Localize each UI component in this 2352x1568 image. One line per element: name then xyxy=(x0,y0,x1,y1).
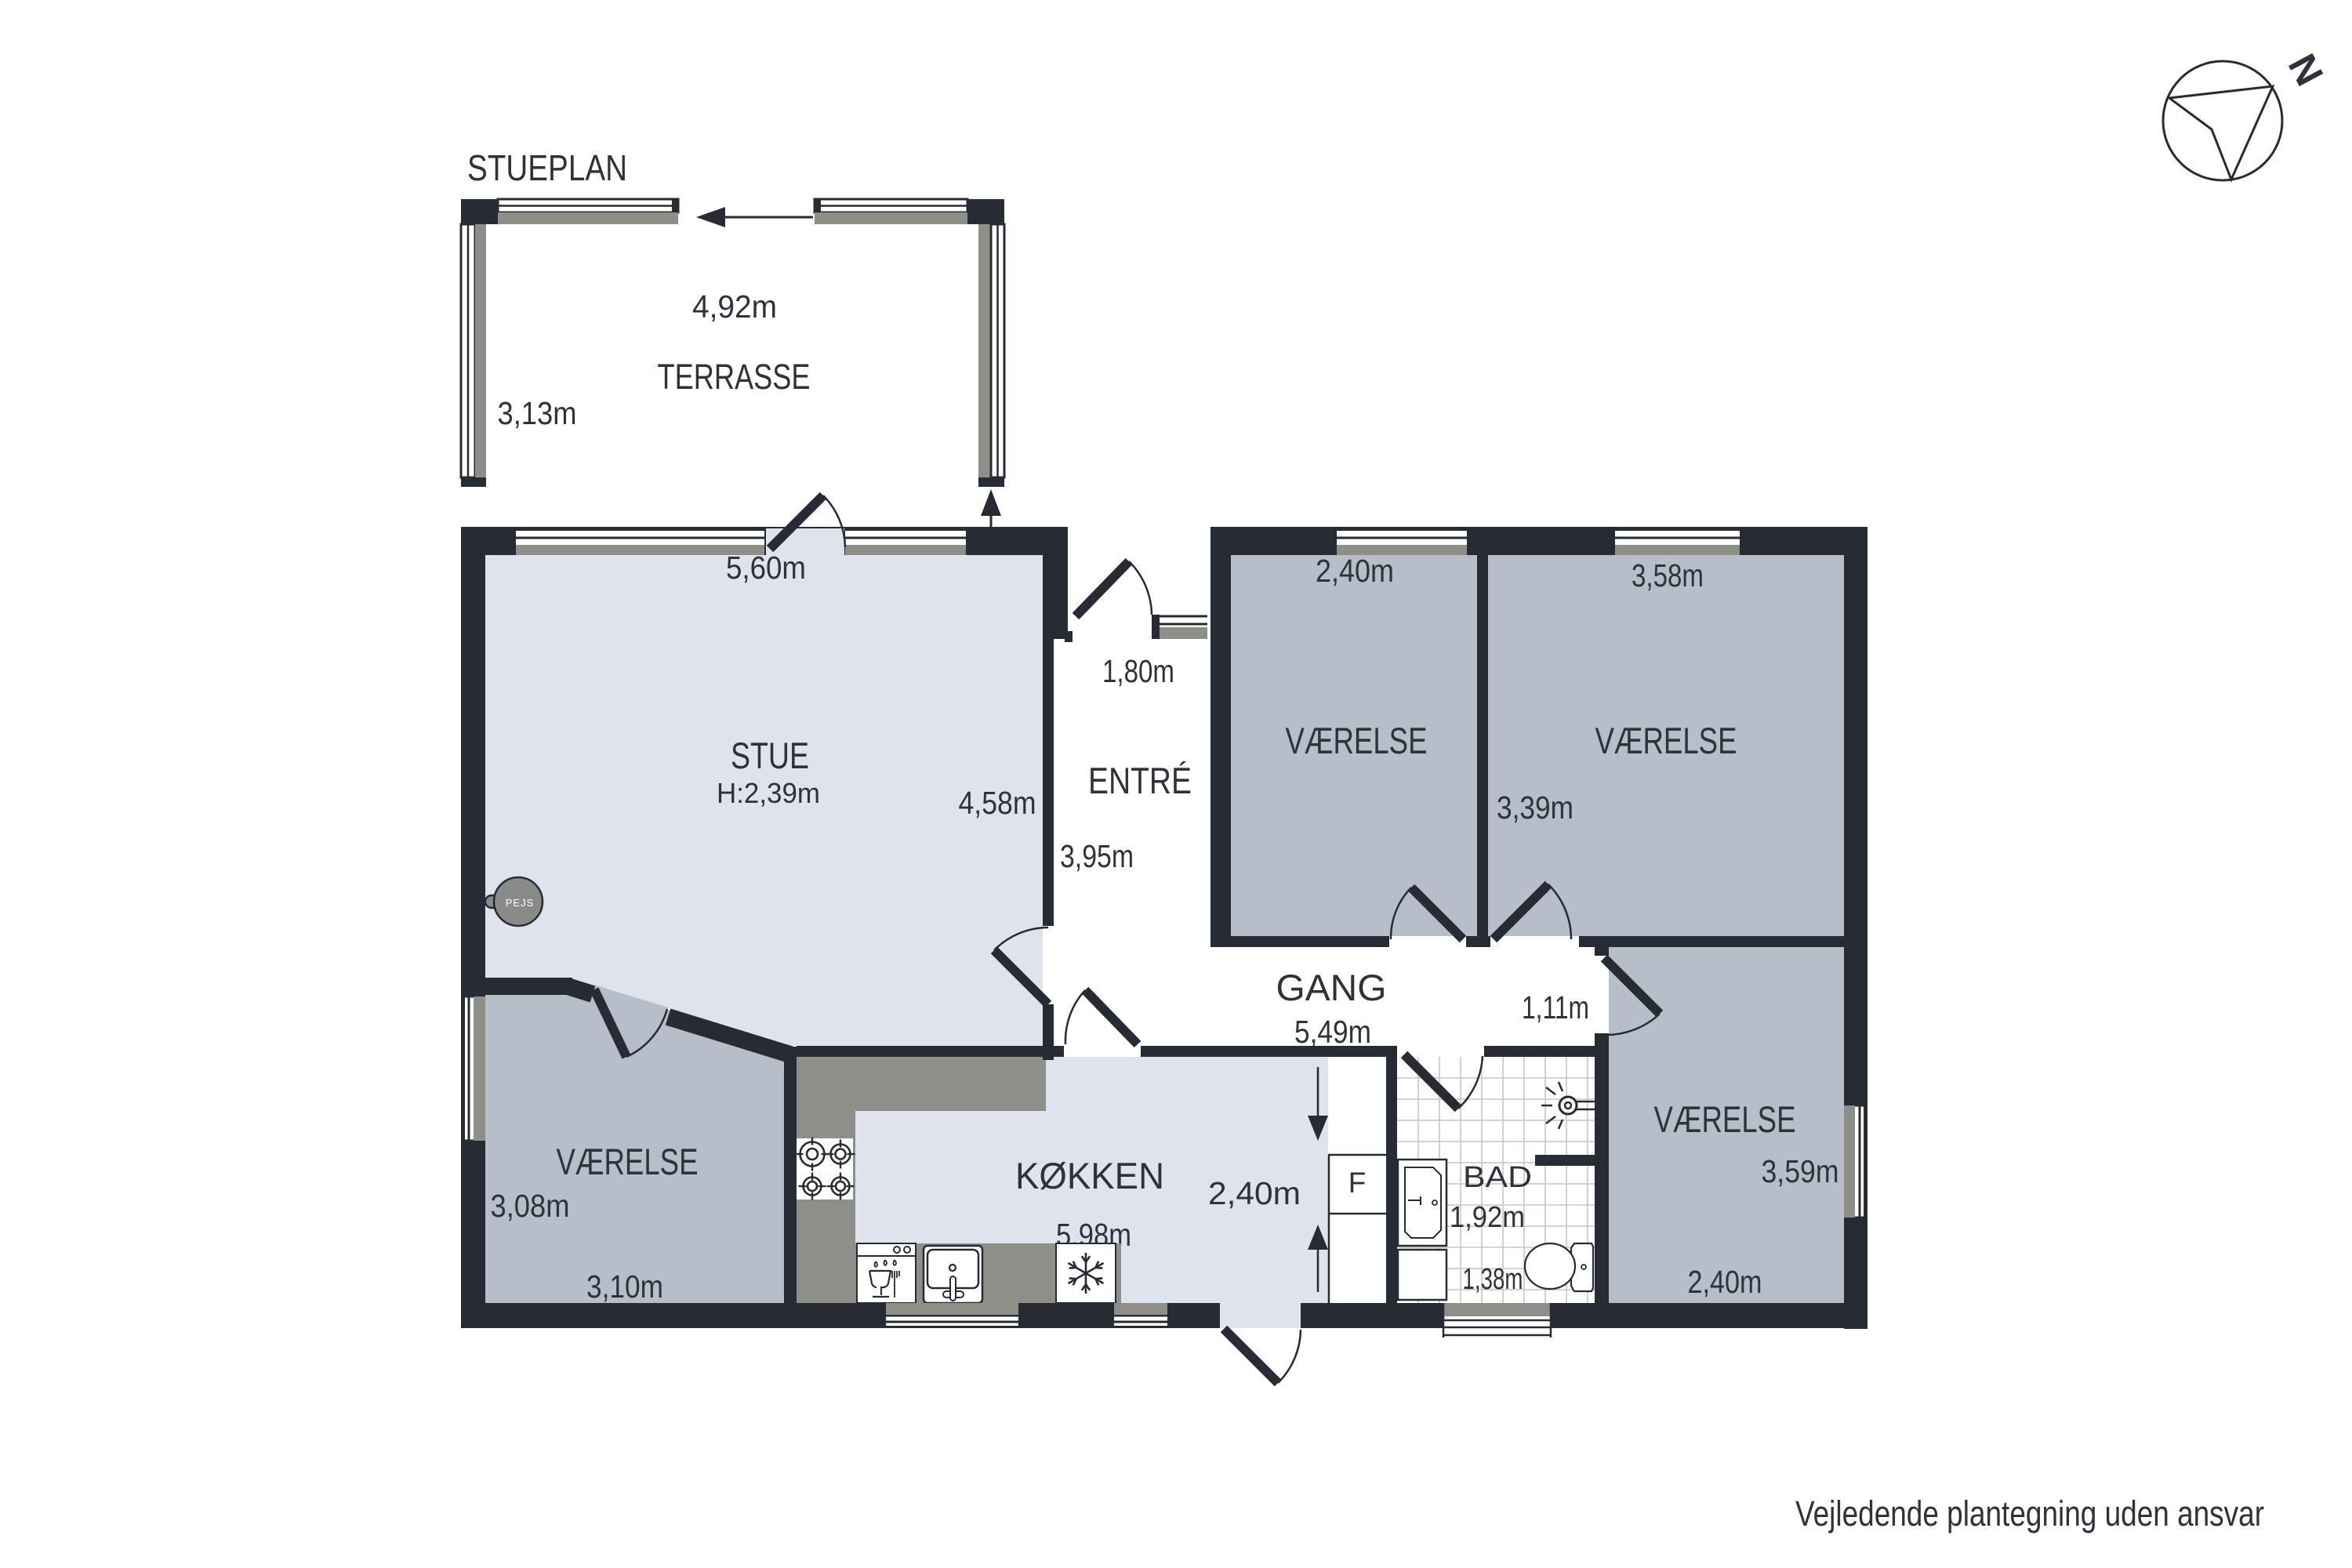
svg-text:VÆRELSE: VÆRELSE xyxy=(1654,1098,1796,1140)
svg-text:Vejledende plantegning uden an: Vejledende plantegning uden ansvar xyxy=(1795,1494,2264,1534)
svg-text:2,40m: 2,40m xyxy=(1316,553,1394,589)
svg-text:GANG: GANG xyxy=(1276,967,1387,1008)
svg-text:VÆRELSE: VÆRELSE xyxy=(1595,720,1737,761)
svg-text:4,92m: 4,92m xyxy=(692,289,777,325)
svg-text:STUEPLAN: STUEPLAN xyxy=(467,147,627,188)
svg-text:4,58m: 4,58m xyxy=(959,785,1036,821)
svg-text:1,11m: 1,11m xyxy=(1522,989,1589,1025)
svg-text:PEJS: PEJS xyxy=(506,897,535,909)
svg-text:3,59m: 3,59m xyxy=(1762,1153,1839,1189)
svg-text:3,08m: 3,08m xyxy=(491,1188,570,1224)
svg-text:1,80m: 1,80m xyxy=(1102,653,1174,689)
svg-text:H:2,39m: H:2,39m xyxy=(717,777,820,809)
svg-text:2,40m: 2,40m xyxy=(1688,1264,1762,1300)
svg-text:BAD: BAD xyxy=(1463,1161,1532,1194)
svg-text:TERRASSE: TERRASSE xyxy=(658,357,811,397)
svg-text:STUE: STUE xyxy=(731,735,809,776)
svg-text:2,40m: 2,40m xyxy=(1208,1175,1301,1211)
svg-text:ENTRÉ: ENTRÉ xyxy=(1088,760,1192,801)
svg-text:VÆRELSE: VÆRELSE xyxy=(557,1141,699,1182)
svg-text:3,10m: 3,10m xyxy=(586,1269,663,1305)
svg-text:1,38m: 1,38m xyxy=(1463,1263,1523,1296)
svg-text:3,13m: 3,13m xyxy=(498,395,577,431)
svg-text:1,92m: 1,92m xyxy=(1450,1201,1525,1234)
svg-text:KØKKEN: KØKKEN xyxy=(1015,1155,1164,1196)
svg-text:F: F xyxy=(1348,1167,1367,1199)
svg-text:VÆRELSE: VÆRELSE xyxy=(1286,720,1428,761)
svg-text:3,95m: 3,95m xyxy=(1060,838,1134,874)
svg-text:3,39m: 3,39m xyxy=(1497,789,1573,826)
svg-text:3,58m: 3,58m xyxy=(1632,557,1704,593)
svg-text:5,49m: 5,49m xyxy=(1294,1014,1371,1050)
